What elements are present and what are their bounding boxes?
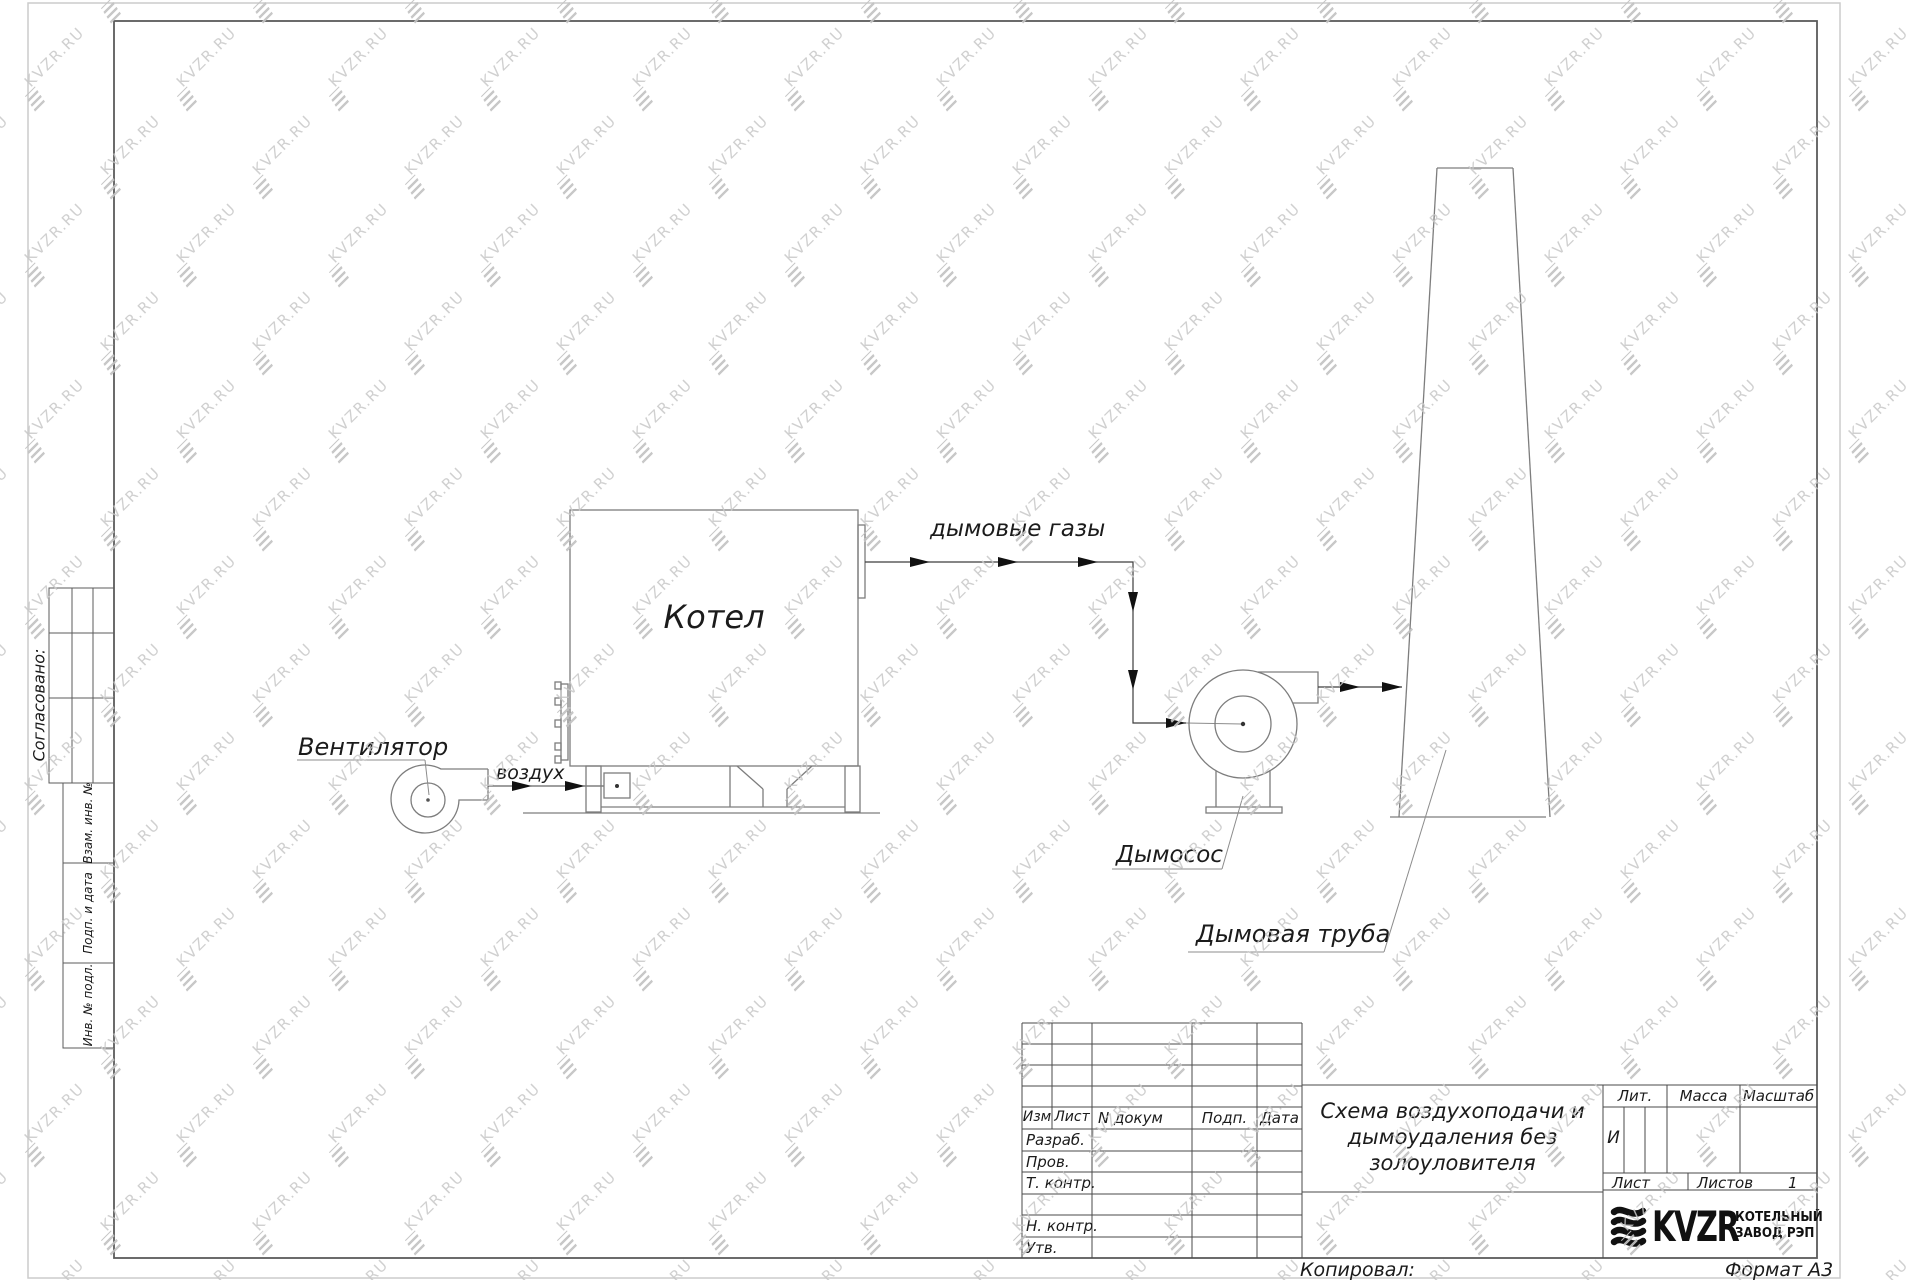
sidebar-box-inv-label: Инв. № подл. bbox=[81, 964, 95, 1047]
boiler-label: Котел bbox=[570, 598, 858, 636]
labels-layer: Вентилятор воздух Котел дымовые газы Дым… bbox=[0, 0, 1920, 1280]
tb-title-line-2: дымоудаления без bbox=[1302, 1124, 1603, 1150]
tb-title-line-1: Схема воздухоподачи и bbox=[1302, 1098, 1603, 1124]
drawing-sheet: Вентилятор воздух Котел дымовые газы Дым… bbox=[0, 0, 1920, 1280]
tb-title-line-3: золоуловителя bbox=[1302, 1150, 1603, 1176]
tb-col-izm: Изм bbox=[1022, 1109, 1052, 1125]
tb-role-tcontrol: Т. контр. bbox=[1026, 1174, 1096, 1192]
tb-col-sign: Подп. bbox=[1192, 1109, 1257, 1127]
fan-label: Вентилятор bbox=[298, 733, 448, 761]
sidebar-box-vzam-label: Взам. инв. № bbox=[81, 782, 95, 863]
approved-label: Согласовано: bbox=[30, 649, 49, 762]
smoke-exhauster-label: Дымосос bbox=[1116, 842, 1223, 868]
chimney-label: Дымовая труба bbox=[1196, 920, 1390, 948]
tb-lit-value: И bbox=[1603, 1128, 1624, 1148]
kvzr-logo-subtitle-line2: ЗАВОД РЭП bbox=[1735, 1226, 1823, 1242]
tb-col-date: Дата bbox=[1257, 1109, 1302, 1127]
tb-sheets-value: 1 bbox=[1788, 1174, 1798, 1192]
tb-sheets-label: Листов bbox=[1697, 1174, 1753, 1192]
tb-role-ncontrol: Н. контр. bbox=[1026, 1217, 1098, 1235]
air-flow-label: воздух bbox=[496, 762, 565, 784]
tb-mass-label: Масса bbox=[1667, 1087, 1740, 1105]
tb-scale-label: Масштаб bbox=[1740, 1087, 1817, 1105]
sidebar-box-podp-label: Подп. и дата bbox=[81, 872, 95, 954]
tb-sheet-label: Лист bbox=[1612, 1174, 1650, 1192]
tb-document-title: Схема воздухоподачи и дымоудаления без з… bbox=[1302, 1098, 1603, 1176]
flue-gases-label: дымовые газы bbox=[930, 516, 1105, 542]
kvzr-logo-text: KVZR bbox=[1652, 1202, 1738, 1251]
tb-lit-label: Лит. bbox=[1603, 1087, 1667, 1105]
copied-label: Копировал: bbox=[1300, 1259, 1415, 1280]
tb-role-checked: Пров. bbox=[1026, 1153, 1070, 1171]
tb-col-doc: N докум bbox=[1098, 1109, 1163, 1127]
tb-role-approved: Утв. bbox=[1026, 1239, 1058, 1257]
format-label: Формат А3 bbox=[1725, 1259, 1833, 1280]
tb-col-list: Лист bbox=[1052, 1109, 1092, 1125]
tb-role-developed: Разраб. bbox=[1026, 1131, 1085, 1149]
kvzr-logo-subtitle: КОТЕЛЬНЫЙ ЗАВОД РЭП bbox=[1735, 1210, 1823, 1242]
kvzr-logo-subtitle-line1: КОТЕЛЬНЫЙ bbox=[1735, 1210, 1823, 1226]
